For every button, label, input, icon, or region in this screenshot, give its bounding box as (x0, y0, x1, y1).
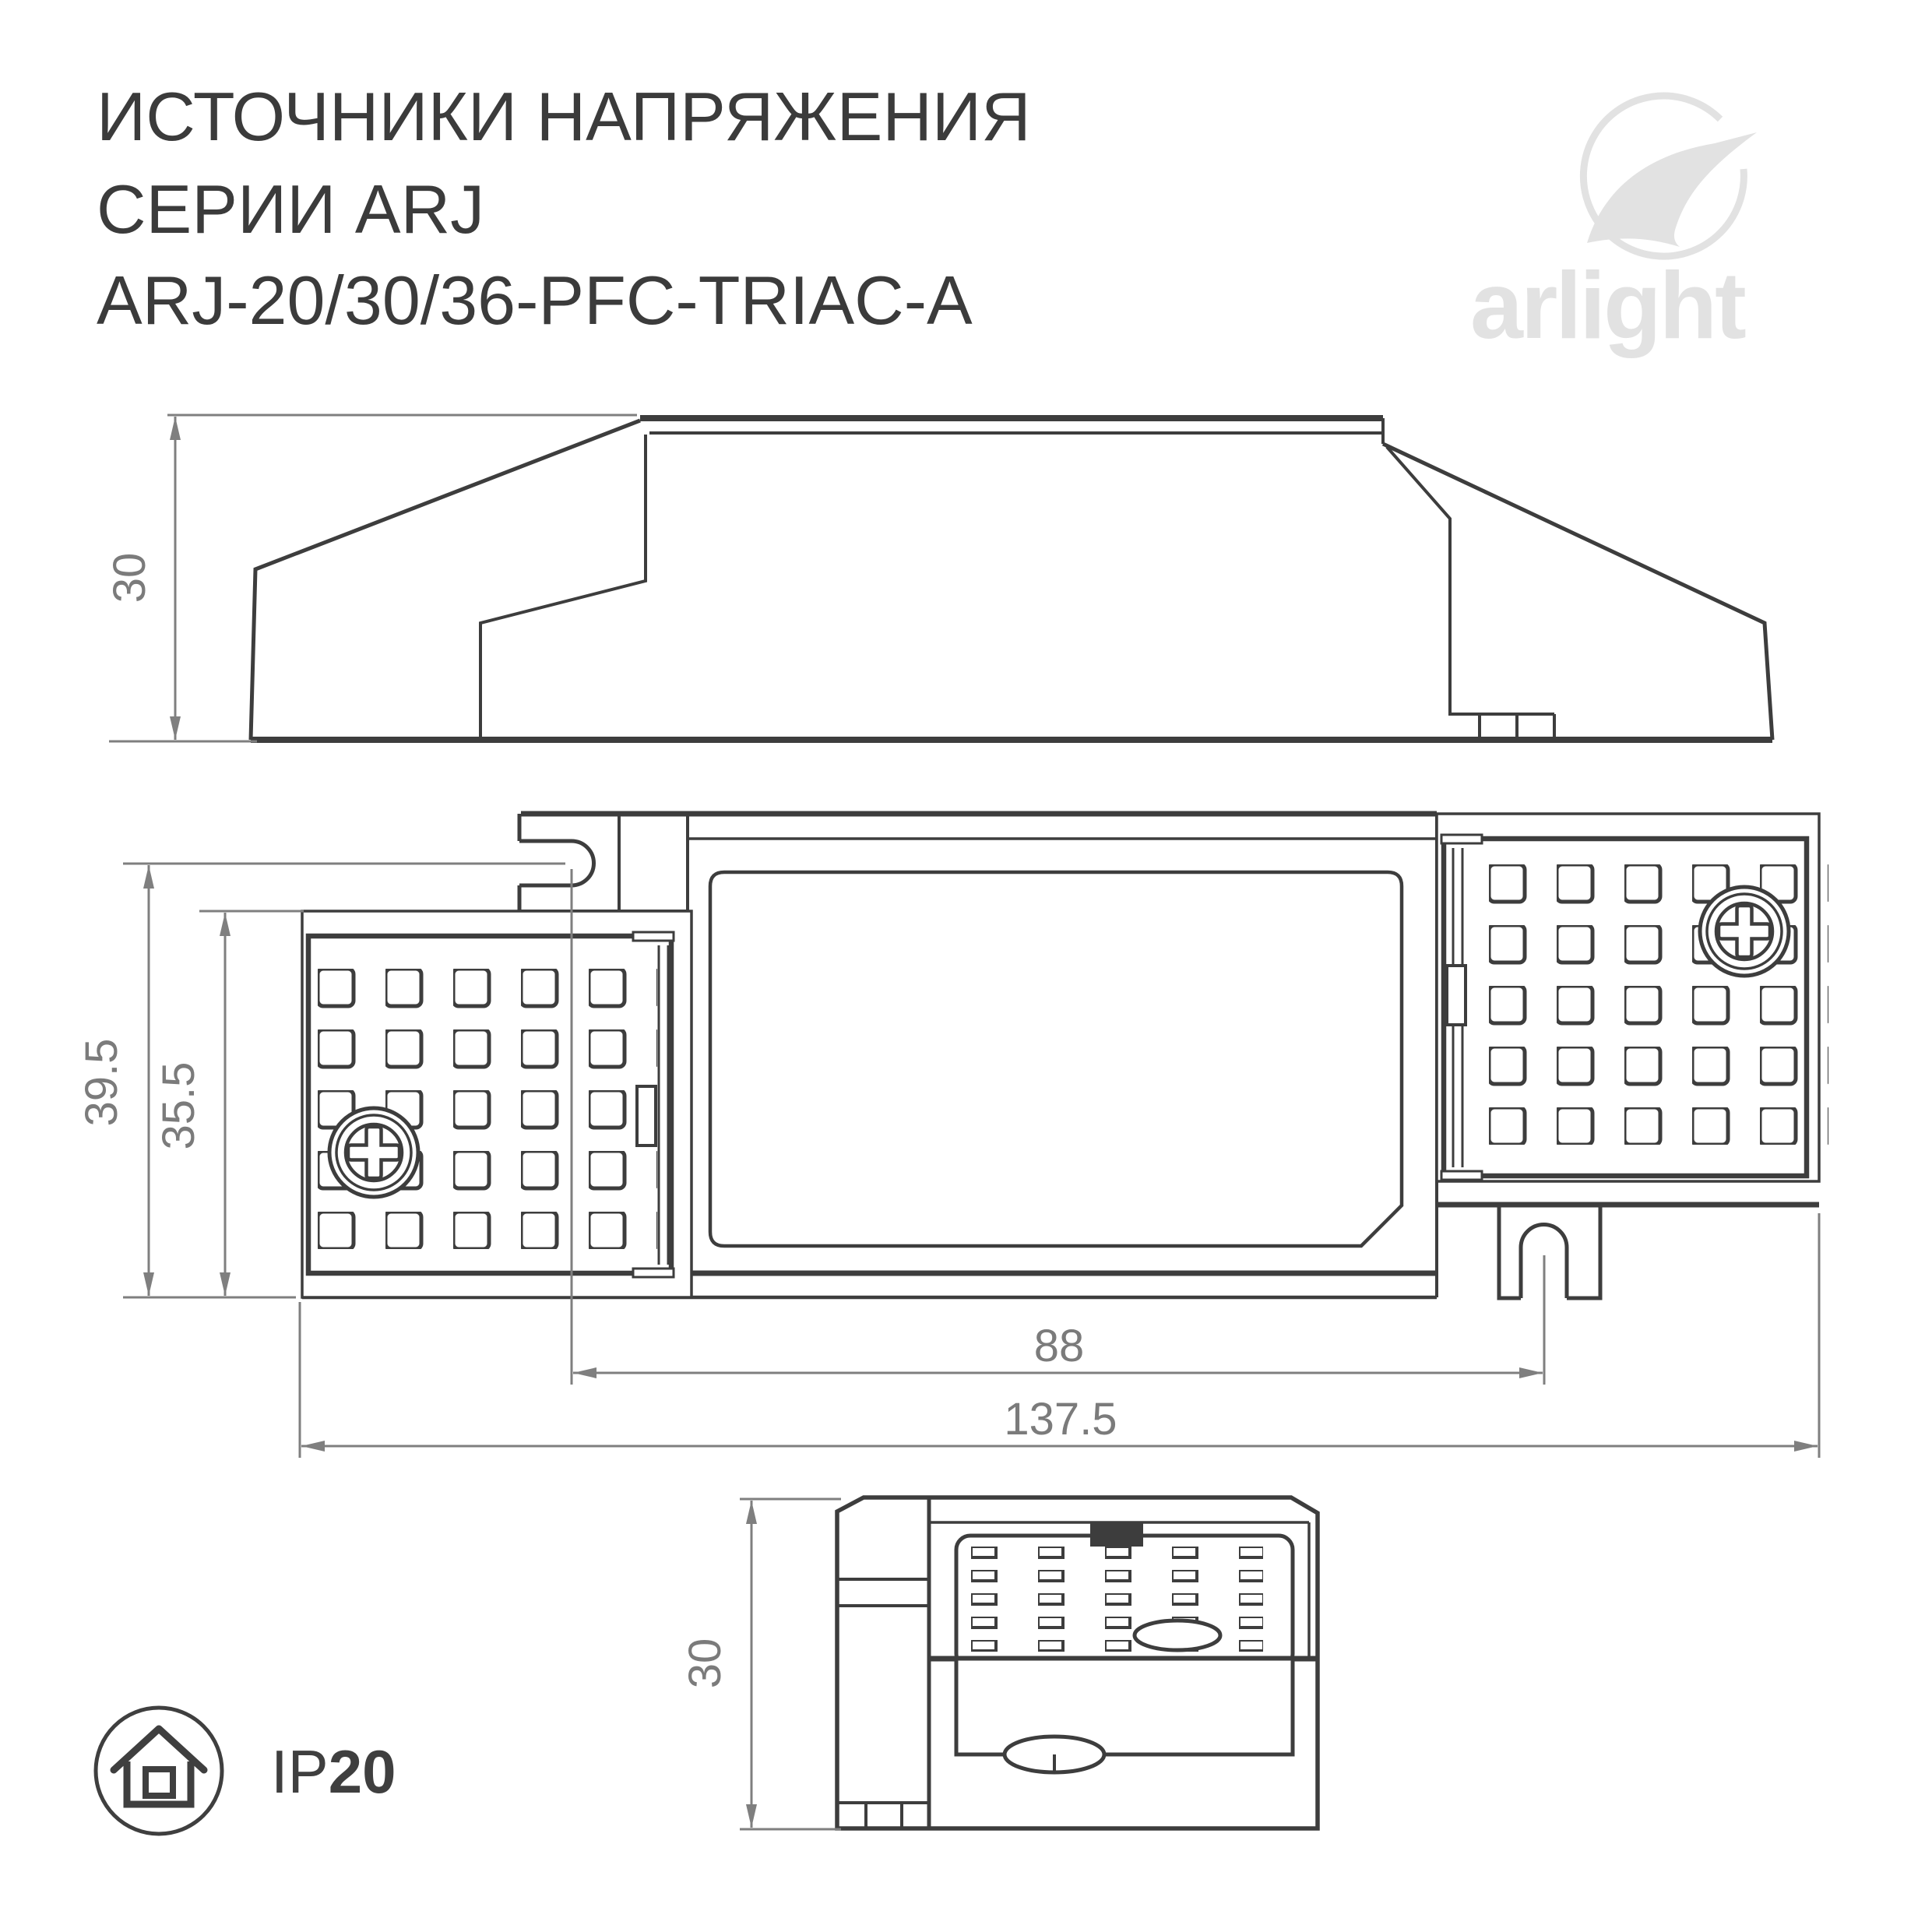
page-title-line2: СЕРИИ ARJ (97, 171, 484, 248)
ip-value: 20 (329, 1737, 396, 1806)
end-lower-cover (956, 1659, 1293, 1754)
dimension-mount-spacing: 88 (572, 869, 1544, 1385)
plan-view (302, 814, 1828, 1298)
plan-plate-height-label: 35.5 (153, 1062, 204, 1150)
datasheet-page: ИСТОЧНИКИ НАПРЯЖЕНИЯ СЕРИИ ARJ ARJ-20/30… (0, 0, 1932, 1932)
logo-wordmark: arlight (1470, 252, 1746, 358)
end-oval-knockout-upper (1135, 1621, 1220, 1650)
side-height-label: 30 (104, 553, 155, 604)
house-icon (114, 1729, 204, 1804)
side-left-cover-line (480, 435, 646, 738)
end-column-foot-box (837, 1803, 929, 1828)
end-connector-black (1090, 1523, 1143, 1547)
title-block: ИСТОЧНИКИ НАПРЯЖЕНИЯ СЕРИИ ARJ ARJ-20/30… (97, 78, 1031, 339)
cover-latch-left (637, 1086, 656, 1145)
plan-outer-height-label: 39.5 (76, 1039, 127, 1127)
ip-prefix: IP (271, 1737, 329, 1806)
screw-left (329, 1108, 418, 1197)
dimension-side-height: 30 (104, 415, 637, 741)
end-view (837, 1497, 1318, 1828)
side-left-profile (251, 421, 640, 740)
screw-right (1700, 887, 1789, 976)
mount-spacing-label: 88 (1034, 1321, 1085, 1371)
terminal-block-right (1437, 814, 1828, 1205)
side-right-profile (1383, 444, 1772, 740)
end-height-label: 30 (680, 1638, 730, 1689)
page-title-line3: ARJ-20/30/36-PFC-TRIAC-A (97, 262, 973, 339)
arlight-logo: arlight (1470, 96, 1757, 358)
ip-rating-label: IP20 (271, 1737, 396, 1806)
dimension-end-height: 30 (680, 1499, 841, 1829)
logo-swoosh-icon (1587, 132, 1757, 247)
side-view (251, 418, 1772, 740)
cover-latch-right (1447, 966, 1466, 1025)
terminal-block-left (302, 911, 692, 1297)
end-column-bands (837, 1579, 929, 1606)
dimension-plan-plate-height: 35.5 (153, 911, 304, 1296)
side-mount-feet (1480, 714, 1554, 738)
label-recess (710, 872, 1402, 1246)
mount-tab-right (1499, 1205, 1600, 1298)
technical-drawing: ИСТОЧНИКИ НАПРЯЖЕНИЯ СЕРИИ ARJ ARJ-20/30… (0, 0, 1932, 1932)
total-length-label: 137.5 (1004, 1394, 1117, 1445)
ip-rating-badge: IP20 (96, 1708, 396, 1834)
page-title-line1: ИСТОЧНИКИ НАПРЯЖЕНИЯ (97, 78, 1031, 155)
